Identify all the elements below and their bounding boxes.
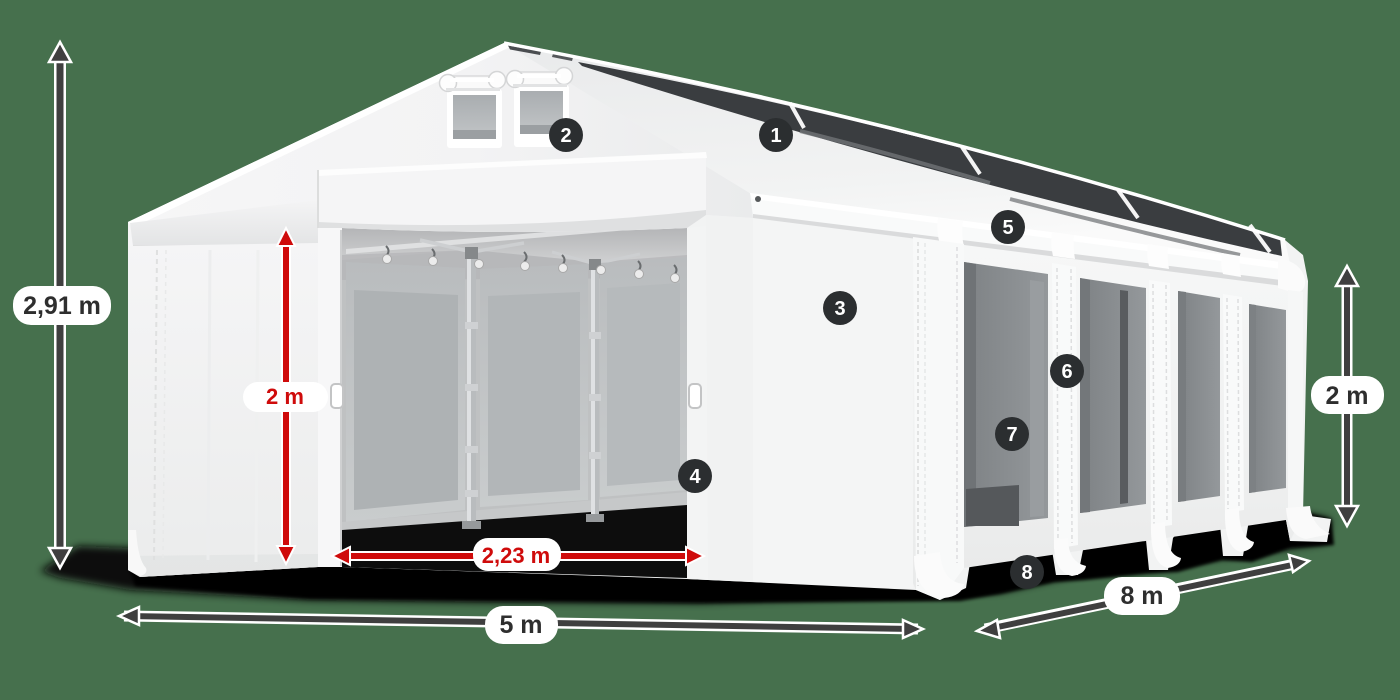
svg-text:2,23 m: 2,23 m — [482, 543, 551, 568]
svg-text:8 m: 8 m — [1120, 582, 1163, 610]
svg-text:2: 2 — [560, 125, 571, 147]
svg-text:1: 1 — [770, 125, 781, 147]
svg-text:4: 4 — [689, 466, 701, 488]
svg-text:2 m: 2 m — [266, 384, 304, 409]
svg-text:2 m: 2 m — [1325, 382, 1368, 410]
svg-text:5: 5 — [1002, 217, 1013, 239]
svg-text:8: 8 — [1021, 562, 1032, 584]
svg-text:3: 3 — [834, 298, 845, 320]
svg-text:2,91 m: 2,91 m — [23, 292, 101, 320]
svg-text:5 m: 5 m — [499, 611, 542, 639]
svg-text:6: 6 — [1061, 361, 1072, 383]
svg-text:7: 7 — [1006, 424, 1017, 446]
